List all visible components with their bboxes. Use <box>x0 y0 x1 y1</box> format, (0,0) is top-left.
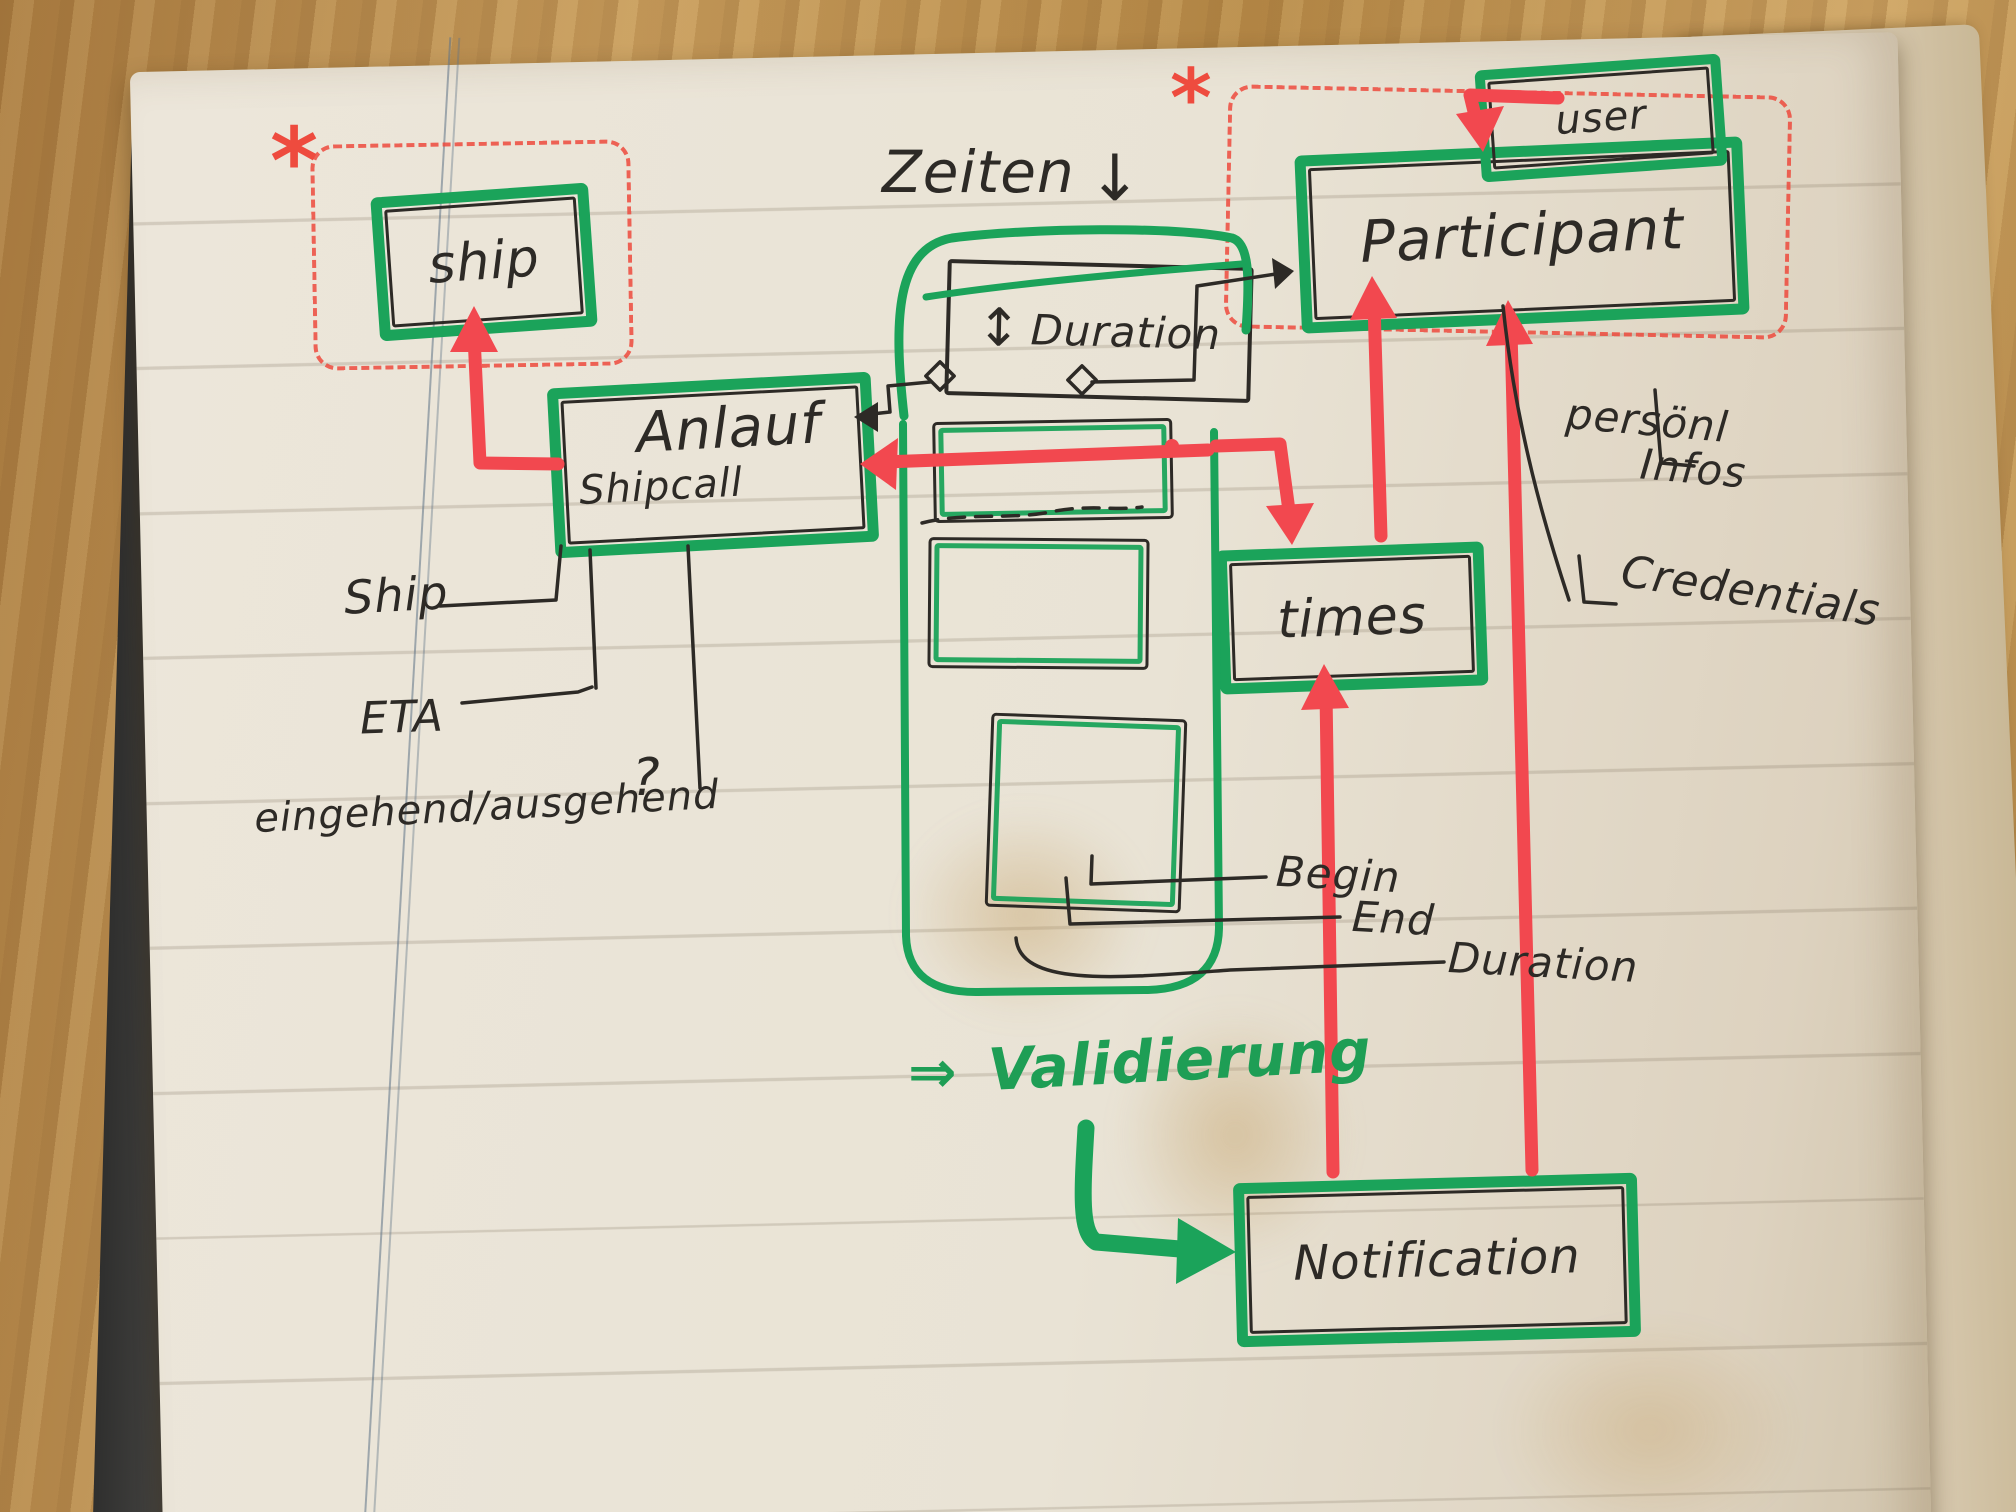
attr-duration: Duration <box>1447 933 1640 992</box>
zeiten-item-box-3 <box>985 713 1188 914</box>
attr-personal-line2: Infos <box>1638 439 1748 497</box>
entity-user: user <box>1474 54 1727 183</box>
zeiten-item-box-1 <box>932 418 1174 523</box>
asterisk-mark-right: * <box>1170 52 1212 145</box>
attr-end: End <box>1351 892 1436 945</box>
attr-inout-question: ? <box>632 748 661 808</box>
entity-times-label: times <box>1276 585 1428 650</box>
entity-ship: ship <box>370 183 598 342</box>
notebook-photo: ship Anlauf Shipcall ↕ Duration Particip… <box>0 0 2016 1512</box>
entity-shipcall-label: Anlauf <box>635 391 823 466</box>
entity-notification-label: Notification <box>1293 1228 1582 1292</box>
entity-user-label: user <box>1554 92 1648 144</box>
implies-arrow-icon: ⇒ <box>908 1038 957 1106</box>
entity-notification: Notification <box>1233 1173 1641 1348</box>
attr-ship: Ship <box>343 565 450 624</box>
entity-shipcall: Anlauf Shipcall <box>547 372 879 559</box>
entity-shipcall-sublabel: Shipcall <box>578 459 744 514</box>
updown-arrow-icon: ↕ <box>976 298 1021 359</box>
entity-ship-label: ship <box>426 228 541 296</box>
entity-times: times <box>1216 541 1489 694</box>
heading-zeiten: Zeiten <box>882 138 1075 206</box>
entity-duration: ↕ Duration <box>944 259 1253 403</box>
zeiten-item-box-2 <box>927 537 1149 670</box>
down-arrow-icon: ↓ <box>1088 142 1142 216</box>
entity-duration-label: Duration <box>1030 305 1222 359</box>
asterisk-mark-left: * <box>270 108 318 215</box>
entity-participant-label: Participant <box>1359 194 1686 276</box>
attr-eta: ETA <box>359 691 444 745</box>
